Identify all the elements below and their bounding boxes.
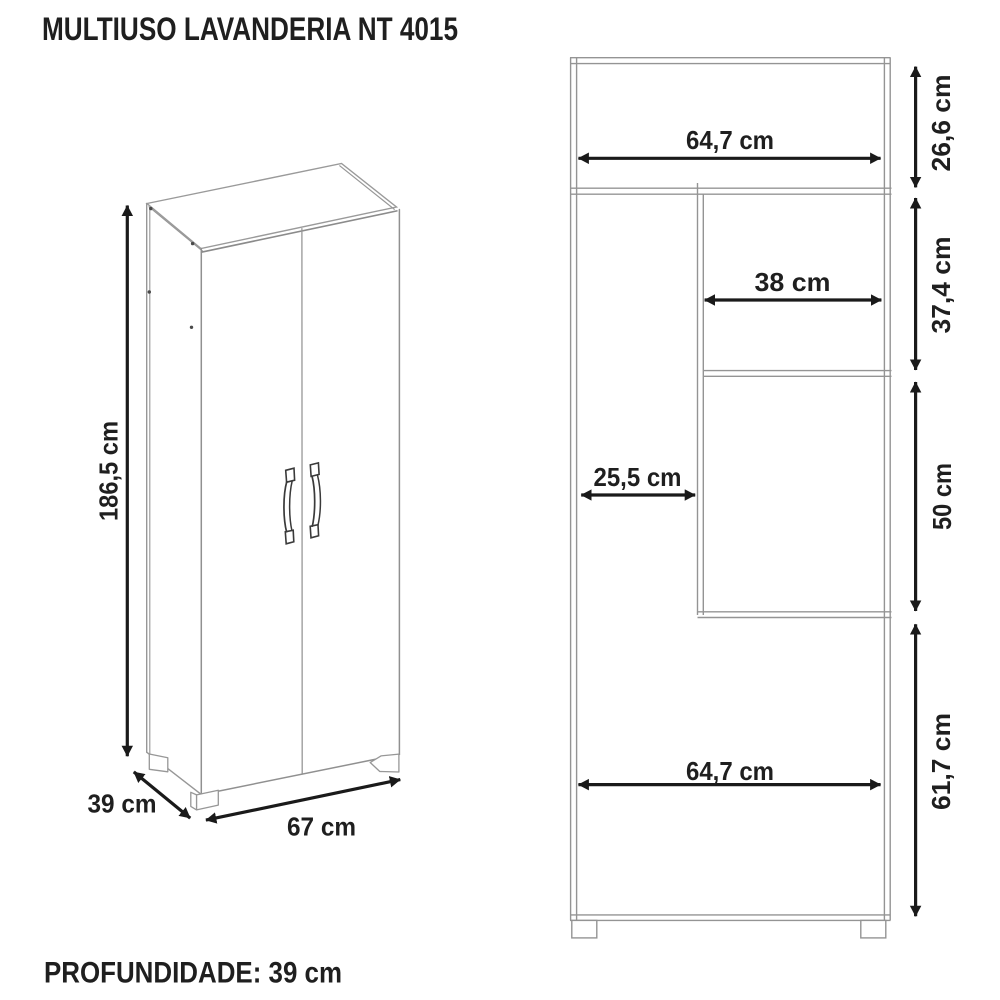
svg-text:PROFUNDIDADE: 39 cm: PROFUNDIDADE: 39 cm	[44, 957, 342, 990]
svg-text:38 cm: 38 cm	[755, 267, 831, 297]
svg-text:50 cm: 50 cm	[927, 463, 957, 530]
svg-text:25,5 cm: 25,5 cm	[594, 462, 682, 492]
svg-text:MULTIUSO LAVANDERIA NT 4015: MULTIUSO LAVANDERIA NT 4015	[42, 11, 458, 47]
svg-text:37,4 cm: 37,4 cm	[926, 237, 956, 334]
svg-text:67 cm: 67 cm	[287, 812, 356, 842]
svg-text:61,7 cm: 61,7 cm	[926, 713, 956, 810]
svg-text:64,7 cm: 64,7 cm	[686, 756, 774, 786]
svg-text:186,5 cm: 186,5 cm	[94, 421, 124, 521]
svg-text:26,6 cm: 26,6 cm	[926, 75, 956, 172]
svg-text:64,7 cm: 64,7 cm	[686, 125, 774, 155]
svg-text:39 cm: 39 cm	[88, 789, 157, 819]
